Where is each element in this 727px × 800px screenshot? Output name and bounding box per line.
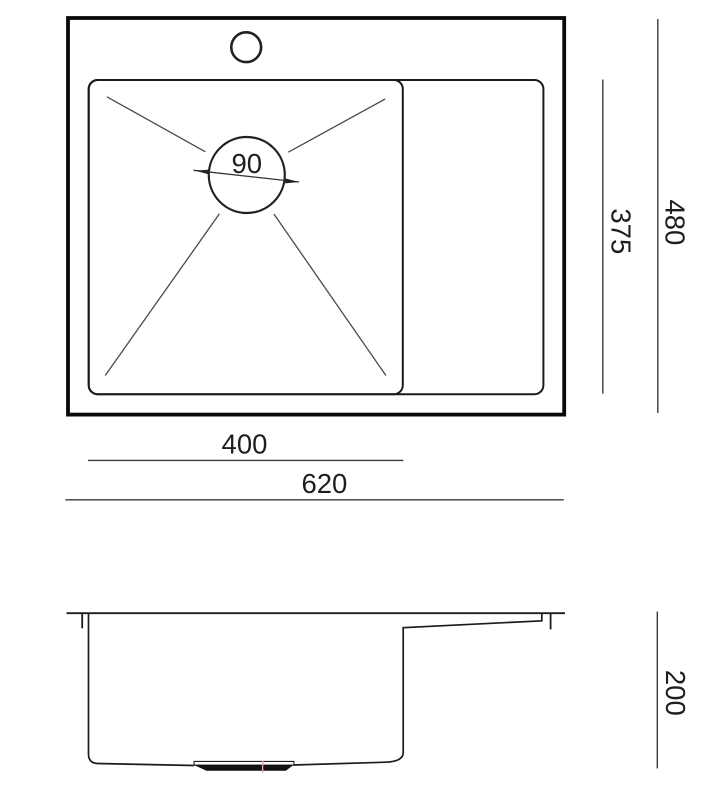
svg-text:375: 375 xyxy=(606,208,637,254)
svg-text:480: 480 xyxy=(660,199,691,245)
svg-text:200: 200 xyxy=(660,670,691,716)
svg-text:620: 620 xyxy=(301,468,347,499)
svg-text:90: 90 xyxy=(232,148,263,179)
svg-text:400: 400 xyxy=(222,429,268,460)
